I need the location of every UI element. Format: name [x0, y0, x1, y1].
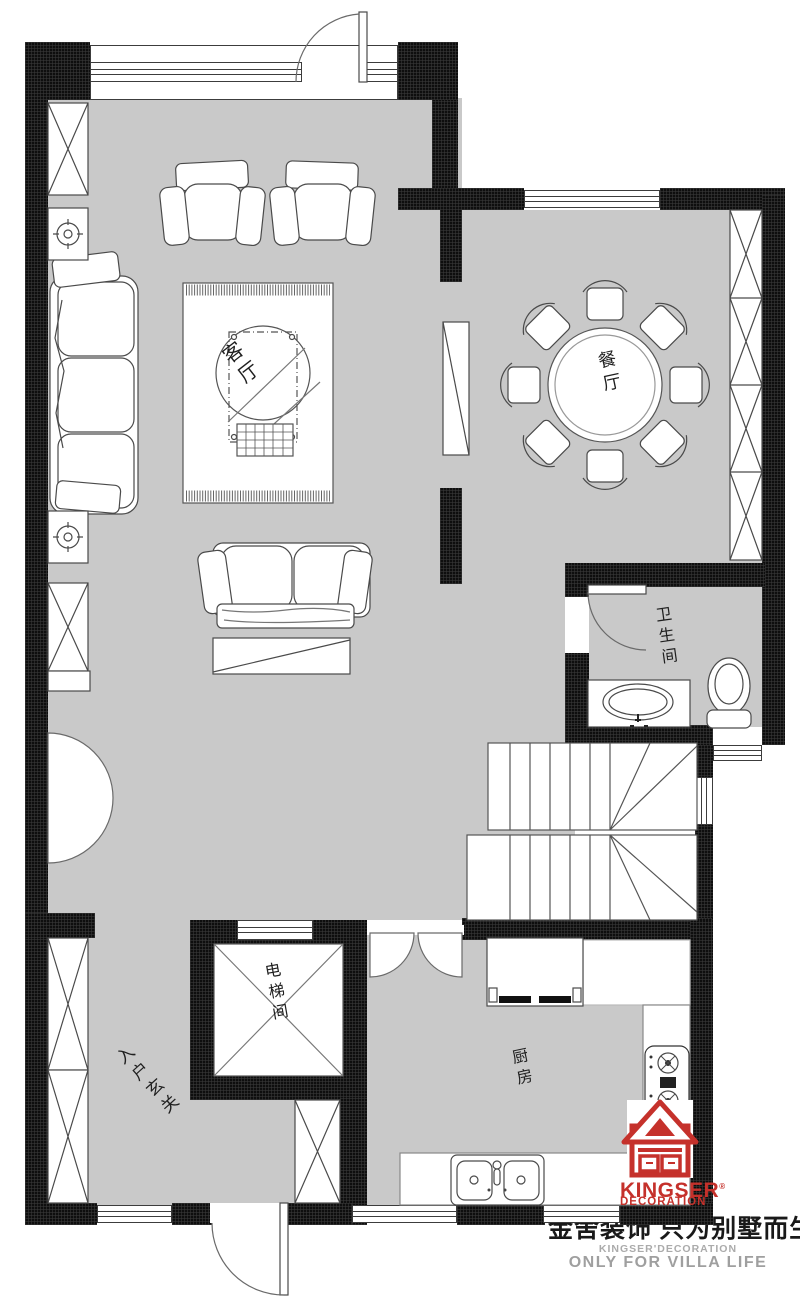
dining-chair — [583, 450, 627, 489]
sofa-left — [50, 251, 138, 514]
dining-cabinet — [730, 210, 762, 560]
wardrobe-cabinet — [48, 583, 90, 691]
light-fixture-icon — [48, 511, 88, 563]
bathroom-door — [588, 585, 646, 650]
wardrobe-cabinet — [48, 103, 88, 195]
registered-mark: ® — [719, 1182, 725, 1191]
furniture-layer — [0, 0, 800, 1301]
armchair — [159, 160, 266, 246]
staircase — [467, 743, 697, 920]
kitchen-sink — [451, 1155, 544, 1205]
floor-plan: 金舍装饰 只为别墅而生。 — [0, 0, 800, 1301]
kitchen-double-door — [370, 933, 462, 977]
dining-chair — [501, 363, 540, 407]
sofa-bottom — [197, 543, 373, 628]
wardrobe-cabinet — [295, 1100, 340, 1203]
toilet — [707, 658, 751, 728]
dining-chair — [583, 281, 627, 320]
wardrobe-cabinet — [48, 938, 88, 1070]
dining-chair — [670, 363, 709, 407]
sideboard — [443, 322, 469, 455]
bathroom-vanity — [588, 680, 690, 727]
kingser-logo-mark — [624, 1100, 696, 1178]
entry-door — [212, 1203, 288, 1295]
balcony-door — [296, 12, 367, 82]
brand-tagline: ONLY FOR VILLA LIFE — [548, 1254, 788, 1272]
brand-logo-sub: DECORATION — [620, 1196, 700, 1208]
armchair — [269, 161, 376, 246]
side-door-swing — [48, 733, 113, 863]
tv-bench — [213, 638, 350, 674]
light-fixture-icon — [48, 208, 88, 260]
wardrobe-cabinet — [48, 1070, 88, 1203]
refrigerator — [487, 938, 583, 1006]
